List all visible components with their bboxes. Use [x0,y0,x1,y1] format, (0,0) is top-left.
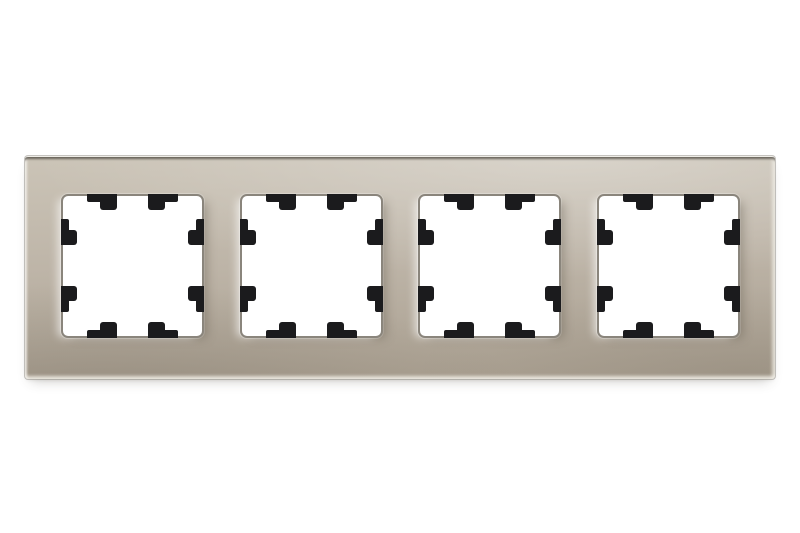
mounting-clip-left-upper [597,219,605,245]
mounting-clip-top-right [505,194,535,202]
mounting-clip-right-lower [553,286,561,312]
mounting-clip-right-upper [375,219,383,245]
mounting-clip-bottom-left [623,330,653,338]
mounting-clip-right-lower [732,286,740,312]
mounting-clip-top-right [684,194,714,202]
mounting-clip-bottom-left [87,330,117,338]
mounting-clip-top-left [444,194,474,202]
mounting-clip-left-lower [418,286,426,312]
mounting-clip-bottom-left [444,330,474,338]
mounting-clip-top-right [148,194,178,202]
mounting-clip-right-upper [553,219,561,245]
mounting-clip-top-left [623,194,653,202]
mounting-clip-right-upper [732,219,740,245]
mounting-clip-left-lower [240,286,248,312]
mounting-clip-left-lower [61,286,69,312]
mounting-clip-top-right [327,194,357,202]
mounting-clip-left-lower [597,286,605,312]
frame-opening-3 [418,194,561,338]
frame-opening-1 [61,194,204,338]
mounting-clip-bottom-right [327,330,357,338]
frame-opening-4 [597,194,740,338]
mounting-clip-top-left [87,194,117,202]
mounting-clip-bottom-right [505,330,535,338]
mounting-clip-right-lower [196,286,204,312]
mounting-clip-bottom-right [148,330,178,338]
switch-frame [25,156,775,379]
mounting-clip-bottom-right [684,330,714,338]
mounting-clip-left-upper [240,219,248,245]
frame-opening-2 [240,194,383,338]
mounting-clip-bottom-left [266,330,296,338]
mounting-clip-left-upper [418,219,426,245]
product-photo-canvas [0,0,800,533]
mounting-clip-left-upper [61,219,69,245]
mounting-clip-right-lower [375,286,383,312]
mounting-clip-right-upper [196,219,204,245]
mounting-clip-top-left [266,194,296,202]
